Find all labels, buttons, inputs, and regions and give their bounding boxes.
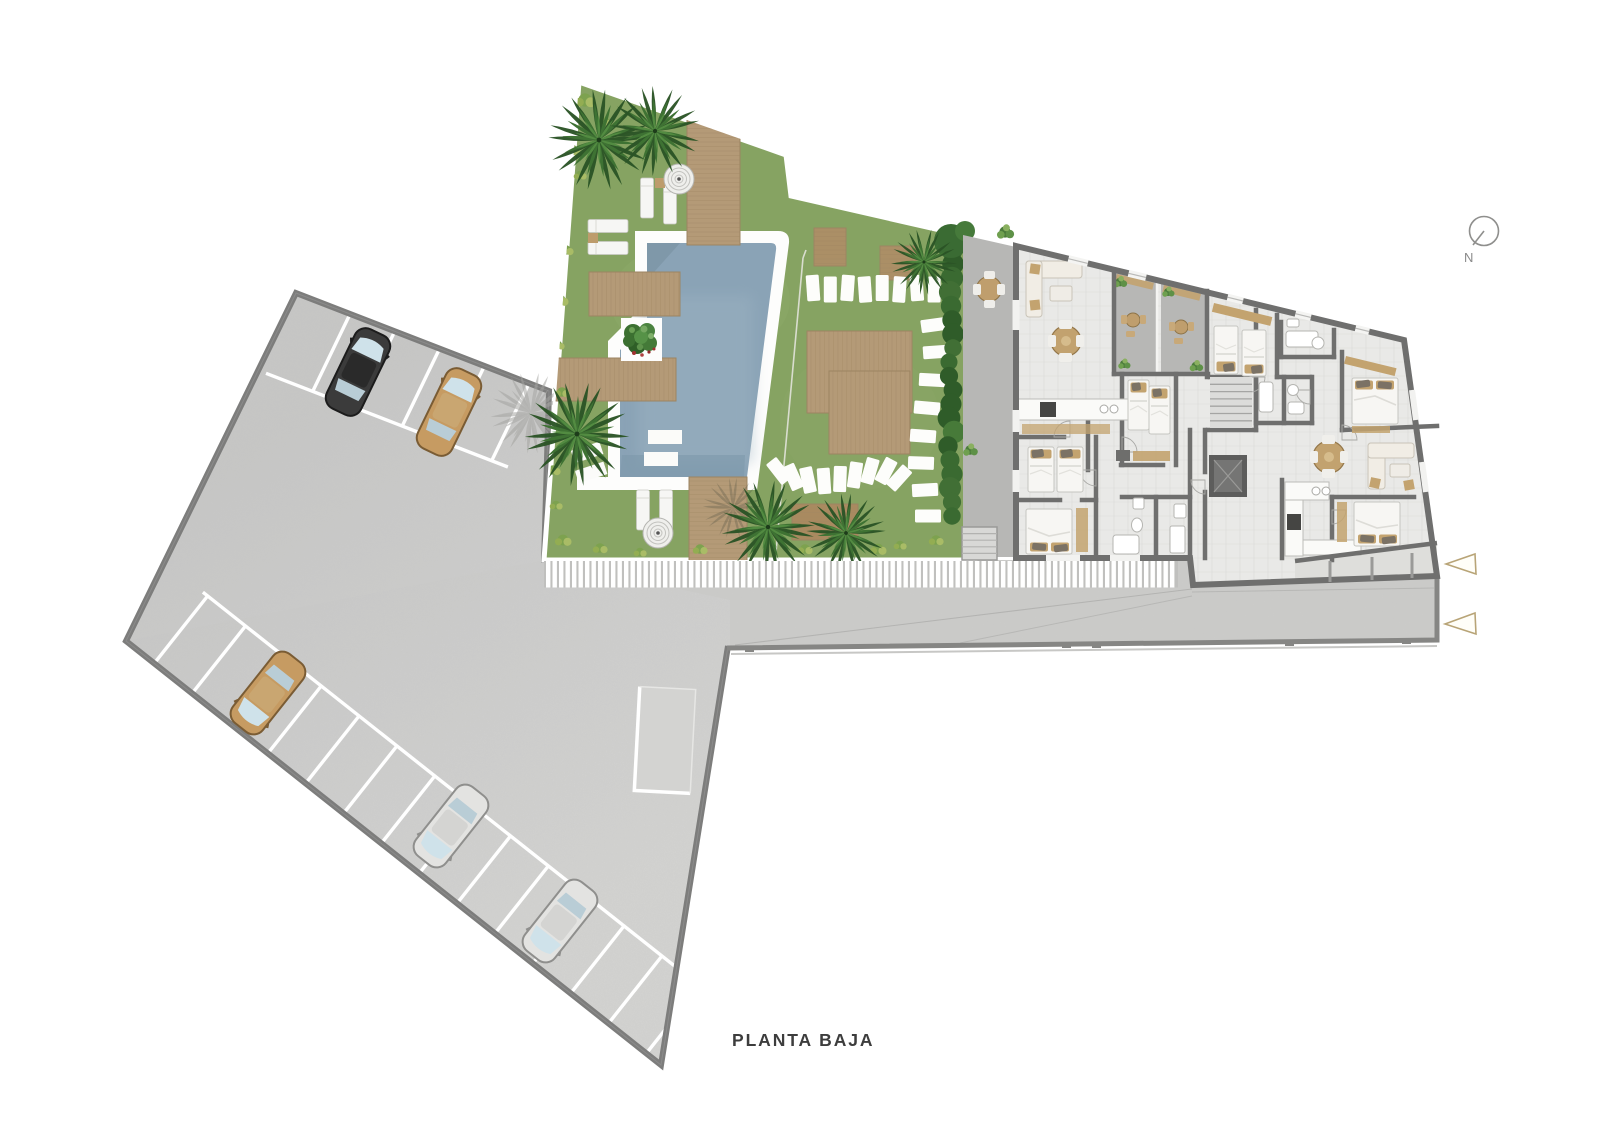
svg-text:PLANTA BAJA: PLANTA BAJA <box>732 1030 874 1050</box>
svg-text:N: N <box>1464 250 1473 265</box>
